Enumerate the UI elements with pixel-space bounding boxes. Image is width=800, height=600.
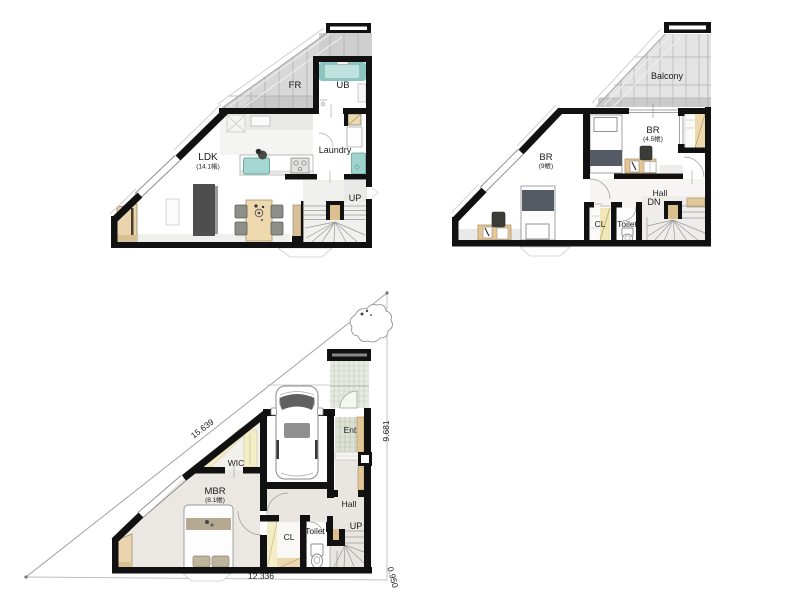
svg-text:Laundry: Laundry (319, 145, 352, 155)
svg-text:LDK: LDK (198, 152, 218, 163)
svg-text:UB: UB (336, 80, 349, 91)
svg-text:WIC: WIC (228, 458, 245, 468)
svg-text:(8.1帳): (8.1帳) (205, 495, 225, 504)
svg-text:CL: CL (284, 532, 295, 542)
svg-text:BR: BR (646, 125, 659, 136)
svg-text:DN: DN (648, 197, 661, 207)
svg-text:BR: BR (539, 152, 552, 163)
svg-text:Balcony: Balcony (651, 71, 684, 81)
svg-text:UP: UP (349, 193, 362, 203)
svg-text:9.681: 9.681 (381, 420, 391, 442)
svg-text:Toilet: Toilet (617, 219, 637, 229)
svg-text:Ent: Ent (344, 425, 357, 435)
svg-text:UP: UP (350, 521, 363, 531)
svg-text:Hall: Hall (342, 499, 357, 509)
svg-text:MBR: MBR (204, 486, 225, 497)
svg-text:FR: FR (289, 80, 302, 91)
svg-text:(14.1帳): (14.1帳) (196, 162, 219, 171)
svg-text:(9帳): (9帳) (539, 161, 553, 170)
svg-text:CL: CL (595, 219, 606, 229)
svg-text:(4.5帳): (4.5帳) (643, 134, 663, 143)
